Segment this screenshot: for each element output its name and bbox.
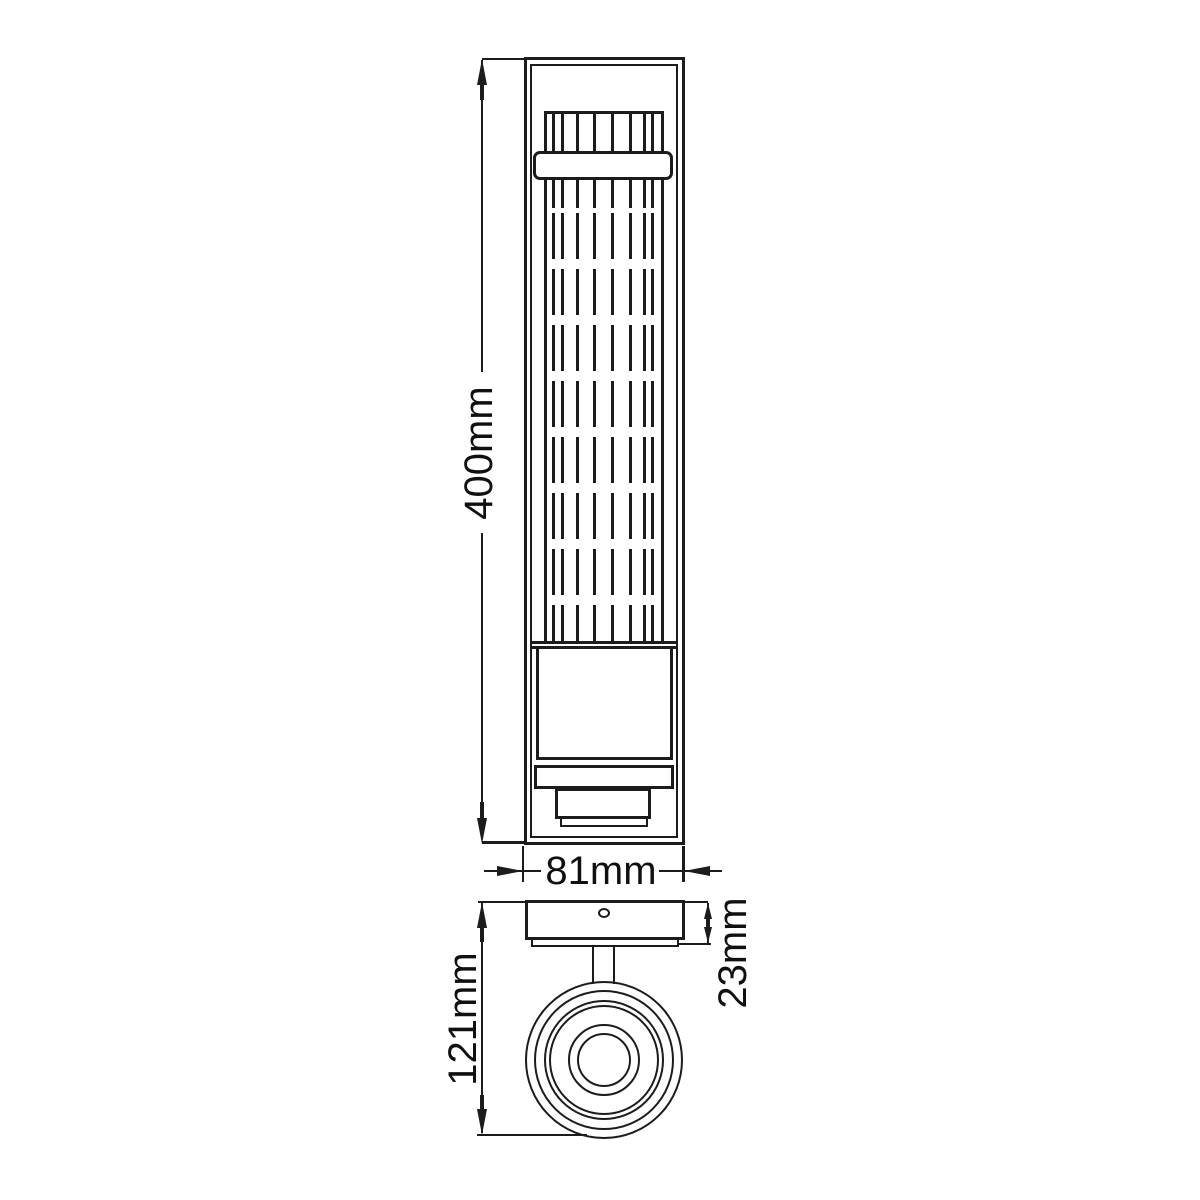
lamp-ring-inner: [577, 1033, 631, 1087]
backplate-dimension-label: 23mm: [713, 897, 753, 1008]
tube-rib: [576, 114, 579, 641]
mounting-hole: [598, 908, 610, 918]
dim-arrow-tail: [480, 928, 485, 942]
tube-rib: [643, 114, 646, 641]
width-extension-right: [682, 846, 685, 882]
tube-rib: [629, 114, 632, 641]
dim-arrow-right-icon: [497, 866, 523, 876]
tube-rib: [561, 114, 564, 641]
backplate-lip: [531, 937, 679, 947]
width-dimension-label: 81mm: [545, 851, 656, 891]
height-dimension-label: 400mm: [459, 386, 499, 519]
dim-arrow-tail: [706, 917, 710, 927]
backplate: [525, 900, 685, 940]
height-dimension-line-upper: [481, 60, 484, 372]
dim-arrow-down-icon: [477, 1109, 487, 1135]
tube-rib: [593, 114, 596, 641]
dim-arrow-left-icon: [684, 866, 710, 876]
socket-housing: [536, 648, 673, 760]
socket-collar: [534, 765, 674, 789]
projection-dimension-label: 121mm: [443, 952, 483, 1085]
dim-arrow-down-icon: [477, 818, 487, 844]
dim-arrow-up-icon: [477, 59, 487, 85]
dim-arrow-tail: [480, 84, 485, 100]
technical-drawing-canvas: 400mm 81mm 121mm: [0, 0, 1200, 1200]
projection-extension-bottom: [477, 1134, 587, 1137]
dim-arrow-up-icon: [477, 902, 487, 928]
lamp-holder: [555, 788, 651, 819]
height-extension-bottom: [482, 841, 526, 844]
backplate-extension-bottom: [679, 943, 711, 946]
stem-right-edge: [613, 947, 616, 984]
tube-rib: [651, 114, 654, 641]
width-extension-left: [522, 846, 525, 882]
lamp-holder-flange: [560, 817, 648, 827]
tube-base-line: [530, 641, 678, 644]
stem-left-edge: [592, 947, 595, 984]
tube-clamp-band: [533, 151, 673, 180]
tube-rib: [611, 114, 614, 641]
height-extension-top: [482, 58, 526, 61]
tube-rib: [552, 114, 555, 641]
height-dimension-line-lower: [481, 533, 484, 818]
dim-arrow-tail: [480, 802, 485, 818]
dim-arrow-tail: [480, 1095, 485, 1109]
